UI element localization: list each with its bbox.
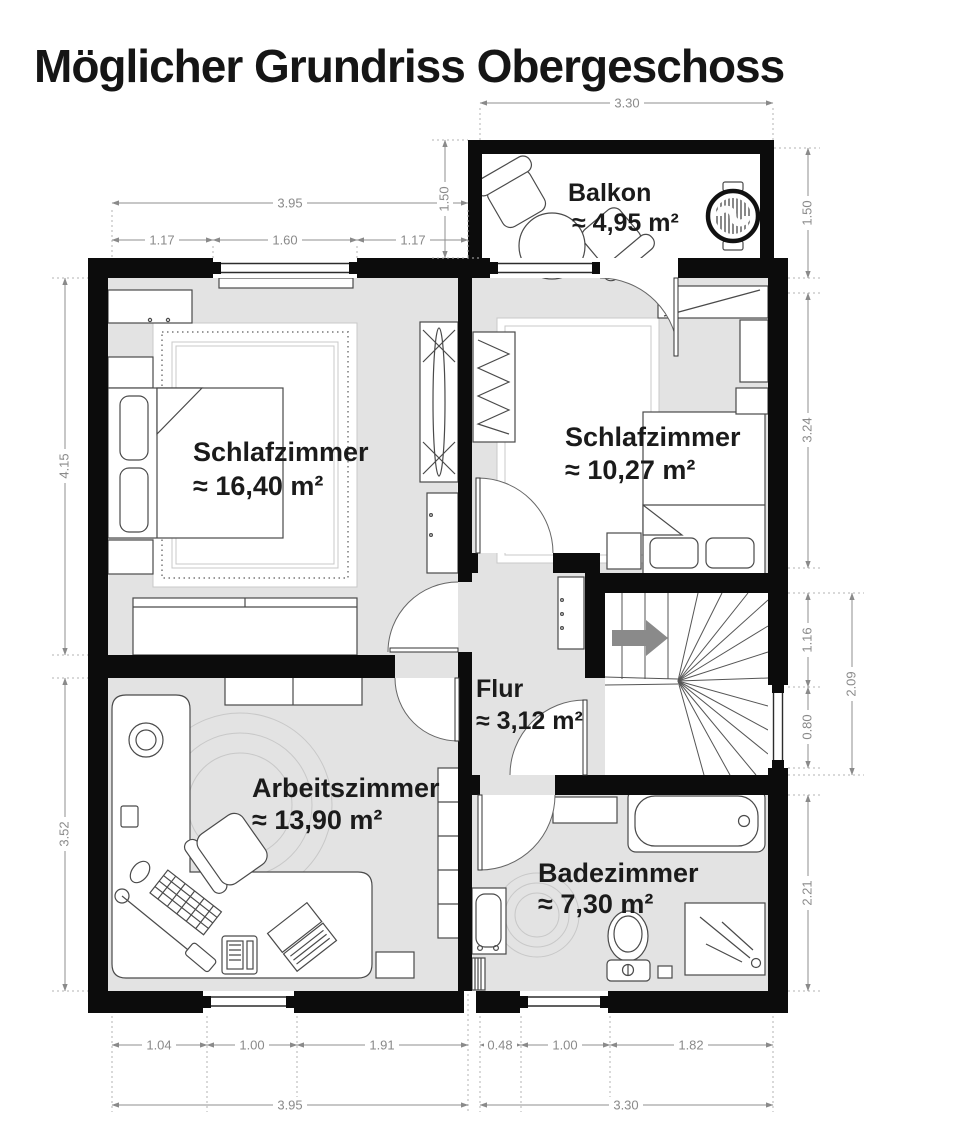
nightstand — [108, 540, 153, 574]
dim-seg-c: 1.17 — [400, 232, 425, 247]
dim-left-total-top: 3.95 — [277, 195, 302, 210]
page-title: Möglicher Grundriss Obergeschoss — [34, 40, 784, 92]
wall-right — [768, 258, 788, 1013]
room-label-flur: Flur — [476, 675, 523, 703]
radiator — [472, 958, 485, 990]
dim-balcony-depth-right: 1.50 — [799, 200, 814, 225]
dim-bedroom2-height: 3.24 — [799, 417, 814, 442]
dim-bedroom1-height: 4.15 — [56, 453, 71, 478]
bedroom1-door-leaf — [390, 648, 458, 652]
room-label-arbeitszimmer: Arbeitszimmer — [252, 773, 440, 803]
study-window — [203, 991, 294, 1013]
wall-bedroom1-study-b — [458, 655, 472, 678]
wardrobe — [420, 322, 458, 482]
dim-left-total-bottom: 3.95 — [277, 1097, 302, 1112]
stairs-window — [768, 685, 788, 768]
bedroom2-door-leaf — [476, 478, 480, 553]
wall-bedroom1-study-a — [88, 655, 395, 678]
clothes-rack — [473, 332, 515, 442]
floorplan-upper-floor: Möglicher Grundriss Obergeschoss — [0, 0, 974, 1146]
room-label-schlafzimmer-1: Schlafzimmer — [193, 437, 369, 467]
room-area-balkon: ≈ 4,95 m² — [572, 209, 679, 237]
stairs-door-leaf — [583, 700, 587, 775]
wall-bottom — [88, 991, 788, 1013]
room-label-balkon: Balkon — [568, 179, 651, 207]
balcony-wall-top — [468, 140, 774, 154]
dim-study-height: 3.52 — [56, 821, 71, 846]
wall-left — [88, 258, 108, 1013]
bedroom1-window — [213, 258, 357, 278]
nightstand — [607, 533, 641, 569]
cabinet — [427, 493, 458, 573]
desk-speaker — [121, 806, 138, 827]
toilet — [607, 911, 650, 981]
printer — [376, 952, 414, 978]
window-sill — [219, 278, 353, 288]
shower — [685, 903, 765, 975]
wall-center-lower — [458, 652, 472, 991]
dim-bottom-d: 0.48 — [487, 1037, 512, 1052]
bathtub — [628, 790, 765, 852]
washbasin — [472, 888, 506, 954]
wall-bedroom2-bottom-b — [553, 553, 600, 573]
toilet-brush — [658, 966, 672, 978]
study-door-leaf — [455, 678, 459, 741]
dim-bottom-b: 1.00 — [239, 1037, 264, 1052]
dim-balcony-depth-left: 1.50 — [436, 186, 451, 211]
dim-balcony-width: 3.30 — [614, 95, 639, 110]
staircase — [605, 593, 768, 775]
sideboard — [133, 598, 357, 655]
room-area-schlafzimmer-2: ≈ 10,27 m² — [565, 455, 695, 485]
wall-center-upper — [458, 278, 472, 553]
wall-bedroom2-bottom-a — [458, 553, 478, 573]
dim-bottom-f: 1.82 — [678, 1037, 703, 1052]
bath-cabinet — [553, 797, 617, 823]
room-area-flur: ≈ 3,12 m² — [476, 707, 583, 735]
room-area-schlafzimmer-1: ≈ 16,40 m² — [193, 471, 323, 501]
hallway-furniture — [558, 577, 584, 649]
dim-stairs-upper: 1.16 — [799, 627, 814, 652]
nightstand — [108, 357, 153, 388]
balcony-french-door — [490, 258, 678, 278]
telephone — [222, 936, 257, 974]
dim-stairs-window: 0.80 — [799, 714, 814, 739]
dim-stairs-total: 2.09 — [843, 671, 858, 696]
room-area-arbeitszimmer: ≈ 13,90 m² — [252, 805, 382, 835]
room-label-schlafzimmer-2: Schlafzimmer — [565, 422, 741, 452]
dim-seg-b: 1.60 — [272, 232, 297, 247]
wall-bath-top-a — [472, 775, 480, 795]
wall-stairs-left — [585, 593, 605, 678]
bathroom-door-leaf — [478, 795, 482, 870]
dim-seg-a: 1.17 — [149, 232, 174, 247]
bathroom-window — [520, 991, 608, 1013]
balcony-wall-left — [468, 140, 482, 258]
section-gap — [464, 991, 476, 1013]
dim-bottom-a: 1.04 — [146, 1037, 171, 1052]
wall-bath-top-b — [555, 775, 788, 795]
balcony-door-leaf — [674, 278, 678, 356]
balcony-wall-right — [760, 140, 774, 258]
room-label-badezimmer: Badezimmer — [538, 858, 699, 888]
room-area-badezimmer: ≈ 7,30 m² — [538, 889, 653, 919]
dim-right-total-bottom: 3.30 — [613, 1097, 638, 1112]
dim-bottom-c: 1.91 — [369, 1037, 394, 1052]
dim-bath-height: 2.21 — [799, 880, 814, 905]
wall-stairs-top — [585, 573, 768, 593]
dim-bottom-e: 1.00 — [552, 1037, 577, 1052]
